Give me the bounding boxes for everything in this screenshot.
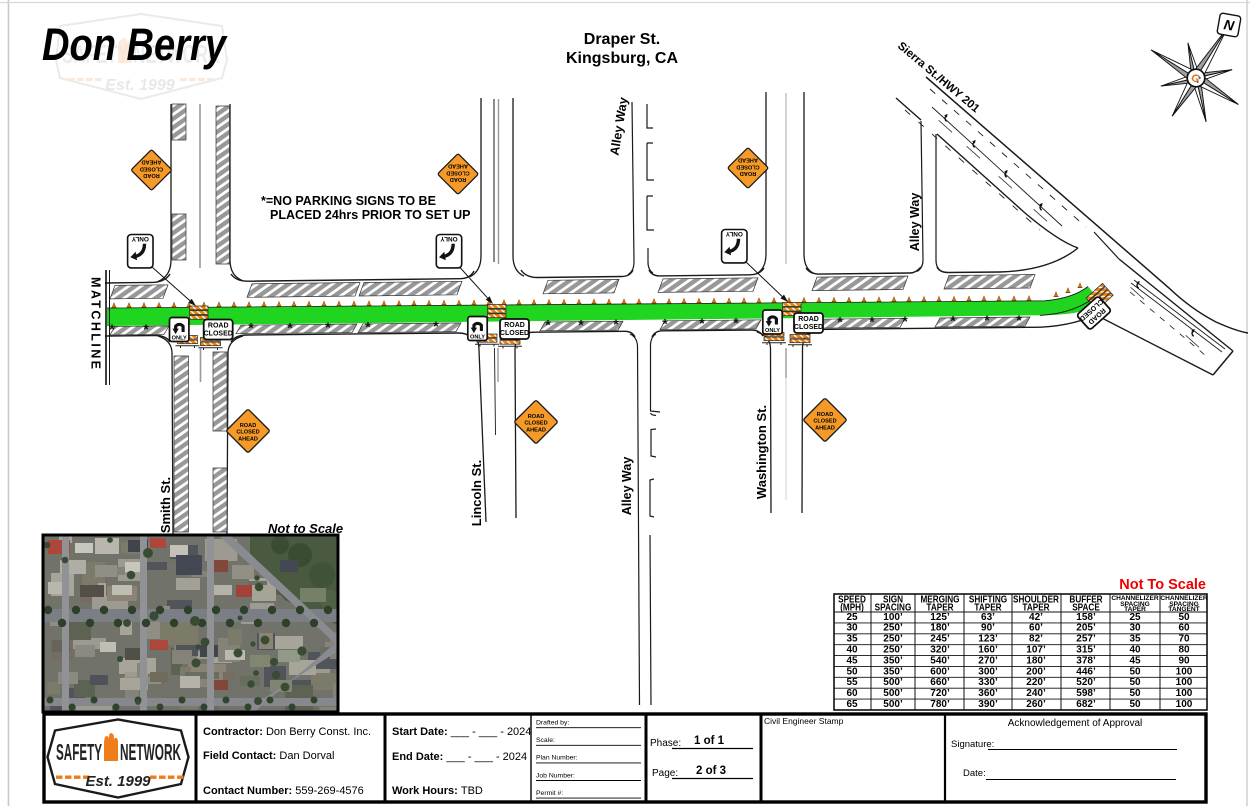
svg-text:NETWORK: NETWORK [120,739,181,765]
svg-text:ONLY: ONLY [172,335,187,341]
svg-text:50: 50 [1178,612,1190,623]
svg-text:ROAD: ROAD [143,172,159,178]
svg-text:90: 90 [1178,655,1190,666]
svg-text:107’: 107’ [1026,645,1046,656]
svg-text:50: 50 [1129,666,1141,677]
svg-text:500’: 500’ [883,688,903,699]
svg-text:160’: 160’ [978,645,998,656]
svg-text:240’: 240’ [1026,688,1046,699]
svg-text:100’: 100’ [883,612,903,623]
svg-text:Est. 1999: Est. 1999 [105,77,174,94]
svg-text:60’: 60’ [1029,623,1043,634]
svg-text:330’: 330’ [978,677,998,688]
svg-text:CLOSED: CLOSED [204,331,233,338]
svg-text:CLOSED: CLOSED [446,169,469,175]
svg-text:Work Hours: TBD: Work Hours: TBD [392,785,483,797]
svg-text:AHEAD: AHEAD [526,427,546,433]
svg-text:Page:: Page: [652,768,678,779]
svg-text:Alley Way: Alley Way [620,457,634,516]
svg-text:82’: 82’ [1029,634,1043,645]
svg-text:AHEAD: AHEAD [738,157,758,163]
svg-text:50: 50 [1129,688,1141,699]
svg-text:PLACED 24hrs PRIOR TO SET UP: PLACED 24hrs PRIOR TO SET UP [270,208,471,222]
svg-text:350’: 350’ [883,666,903,677]
svg-text:55: 55 [846,677,858,688]
svg-text:80: 80 [1178,645,1190,656]
svg-text:AHEAD: AHEAD [448,163,468,169]
svg-text:Don Berry: Don Berry [42,19,228,70]
svg-text:ROAD: ROAD [240,423,256,429]
svg-text:Smith St.: Smith St. [158,477,173,533]
svg-text:540’: 540’ [930,655,950,666]
svg-text:Scale:: Scale: [536,737,555,744]
svg-text:ROAD: ROAD [208,322,229,329]
svg-text:598’: 598’ [1076,688,1096,699]
svg-text:158’: 158’ [1076,612,1096,623]
svg-text:315’: 315’ [1076,645,1096,656]
svg-text:40: 40 [1129,645,1141,656]
svg-text:63’: 63’ [981,612,995,623]
svg-text:50: 50 [1129,677,1141,688]
svg-text:ONLY: ONLY [131,235,149,242]
svg-text:123’: 123’ [978,634,998,645]
svg-text:ROAD: ROAD [740,170,756,176]
svg-text:MATCHLINE: MATCHLINE [89,277,103,369]
svg-text:320’: 320’ [930,645,950,656]
svg-text:Draper St.: Draper St. [584,31,660,48]
svg-text:End Date: ___ - ___ - 2024: End Date: ___ - ___ - 2024 [392,751,527,763]
svg-text:40: 40 [846,645,858,656]
svg-text:Plan Number:: Plan Number: [536,755,578,762]
svg-text:60: 60 [846,688,858,699]
svg-text:1 of 1: 1 of 1 [694,735,725,747]
svg-text:65: 65 [846,699,858,710]
svg-text:Lincoln St.: Lincoln St. [469,460,484,526]
svg-text:Washington St.: Washington St. [754,405,769,499]
svg-text:42’: 42’ [1029,612,1043,623]
svg-text:257’: 257’ [1076,634,1096,645]
svg-text:AHEAD: AHEAD [238,436,258,442]
svg-text:ONLY: ONLY [440,235,458,242]
svg-text:100: 100 [1176,688,1193,699]
svg-text:50: 50 [1129,699,1141,710]
svg-text:205’: 205’ [1076,623,1096,634]
svg-text:Contact Number: 559-269-4576: Contact Number: 559-269-4576 [203,785,364,797]
svg-text:Kingsburg, CA: Kingsburg, CA [566,50,678,67]
svg-text:245’: 245’ [930,634,950,645]
svg-text:Est. 1999: Est. 1999 [85,773,151,790]
svg-text:220’: 220’ [1026,677,1046,688]
svg-text:50: 50 [846,666,858,677]
svg-text:720’: 720’ [930,688,950,699]
svg-text:200’: 200’ [1026,666,1046,677]
svg-text:Start Date: ___ - ___ - 2024: Start Date: ___ - ___ - 2024 [392,726,531,738]
svg-text:Job Number:: Job Number: [536,772,575,779]
svg-text:ROAD: ROAD [450,176,466,182]
svg-text:125’: 125’ [930,612,950,623]
svg-text:25: 25 [846,612,858,623]
svg-text:100: 100 [1176,666,1193,677]
svg-text:Date:: Date: [963,768,986,779]
svg-text:ROAD: ROAD [504,322,525,329]
svg-text:360’: 360’ [978,688,998,699]
svg-text:Acknowledgement of Approval: Acknowledgement of Approval [1008,718,1143,729]
svg-text:300’: 300’ [978,666,998,677]
svg-text:270’: 270’ [978,655,998,666]
svg-text:250’: 250’ [883,623,903,634]
svg-text:780’: 780’ [930,699,950,710]
svg-text:ONLY: ONLY [765,328,780,334]
svg-text:Alley Way: Alley Way [908,193,922,252]
svg-text:180’: 180’ [1026,655,1046,666]
svg-text:Contractor: Don Berry Const. I: Contractor: Don Berry Const. Inc. [203,726,371,738]
svg-text:250’: 250’ [883,634,903,645]
svg-text:682’: 682’ [1076,699,1096,710]
svg-text:30: 30 [846,623,858,634]
svg-text:CLOSED: CLOSED [236,430,259,436]
svg-text:AHEAD: AHEAD [815,425,835,431]
svg-text:378’: 378’ [1076,655,1096,666]
svg-text:500’: 500’ [883,677,903,688]
svg-text:500’: 500’ [883,699,903,710]
svg-text:45: 45 [1129,655,1141,666]
svg-text:100: 100 [1176,677,1193,688]
svg-text:ROAD: ROAD [528,414,544,420]
svg-text:180’: 180’ [930,623,950,634]
svg-text:Civil Engineer Stamp: Civil Engineer Stamp [764,716,844,726]
svg-text:2 of 3: 2 of 3 [696,765,726,777]
svg-text:446’: 446’ [1076,666,1096,677]
svg-text:35: 35 [846,634,858,645]
svg-text:Field Contact: Dan Dorval: Field Contact: Dan Dorval [203,750,334,762]
svg-text:CLOSED: CLOSED [813,419,836,425]
svg-text:Signature:: Signature: [951,739,994,750]
svg-text:CLOSED: CLOSED [524,421,547,427]
svg-text:AHEAD: AHEAD [142,159,162,165]
svg-text:35: 35 [1129,634,1141,645]
svg-text:70: 70 [1178,634,1190,645]
svg-text:250’: 250’ [883,645,903,656]
svg-text:CLOSED: CLOSED [140,165,163,171]
svg-text:30: 30 [1129,623,1141,634]
svg-text:600’: 600’ [930,666,950,677]
svg-text:90’: 90’ [981,623,995,634]
svg-text:390’: 390’ [978,699,998,710]
svg-text:520’: 520’ [1076,677,1096,688]
svg-text:Permit #:: Permit #: [536,790,563,797]
svg-text:ROAD: ROAD [798,316,819,323]
svg-text:60: 60 [1178,623,1190,634]
svg-text:CLOSED: CLOSED [500,330,529,337]
svg-text:ONLY: ONLY [470,334,485,340]
svg-text:*=NO PARKING SIGNS TO BE: *=NO PARKING SIGNS TO BE [261,194,436,208]
svg-text:Drafted by:: Drafted by: [536,720,569,727]
svg-text:SAFETY: SAFETY [56,739,102,765]
svg-text:45: 45 [846,655,858,666]
svg-text:CLOSED: CLOSED [794,324,823,331]
svg-text:25: 25 [1129,612,1141,623]
svg-text:260’: 260’ [1026,699,1046,710]
svg-text:100: 100 [1176,699,1193,710]
svg-text:CLOSED: CLOSED [736,163,759,169]
svg-text:Phase:: Phase: [650,738,681,749]
svg-text:660’: 660’ [930,677,950,688]
svg-text:350’: 350’ [883,655,903,666]
svg-text:ONLY: ONLY [725,230,743,237]
svg-text:ROAD: ROAD [817,412,833,418]
svg-text:Not To Scale: Not To Scale [1119,577,1206,593]
